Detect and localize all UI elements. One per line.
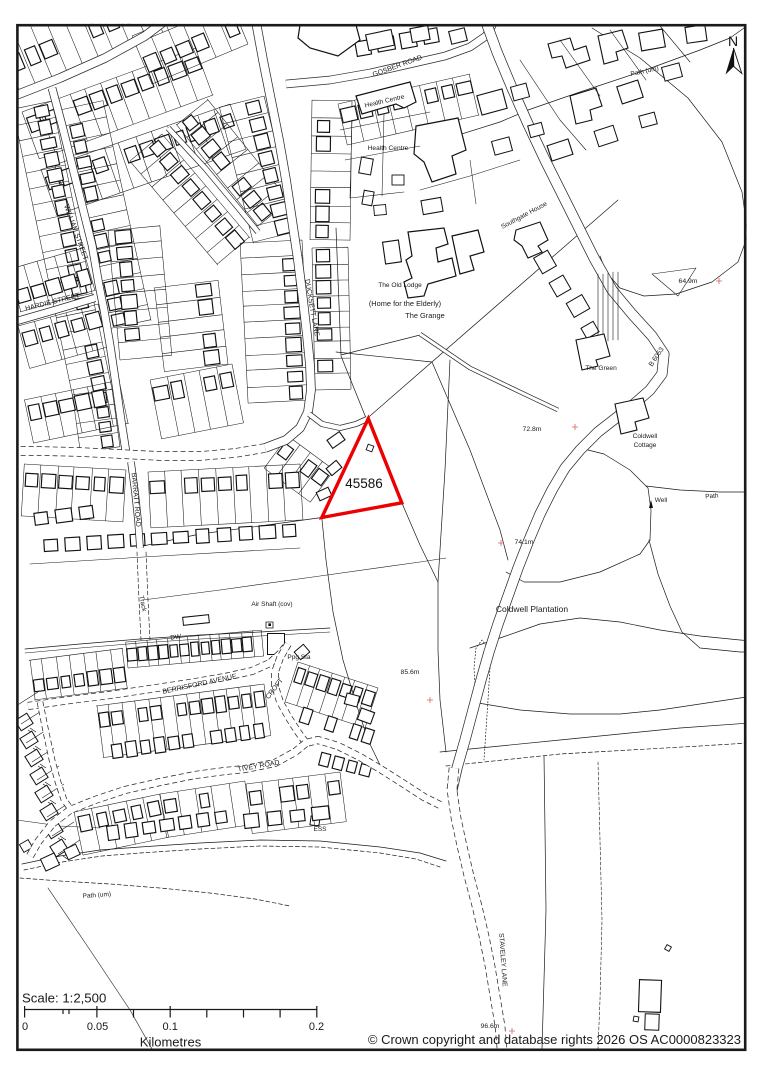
svg-text:72.8m: 72.8m	[523, 426, 542, 433]
svg-text:Health Centre: Health Centre	[368, 145, 409, 152]
svg-text:74.1m: 74.1m	[515, 539, 534, 546]
svg-text:Ppg Sta: Ppg Sta	[287, 654, 311, 661]
svg-text:Coldwell: Coldwell	[633, 433, 658, 440]
svg-text:The Grange: The Grange	[405, 311, 444, 320]
svg-text:© Crown copyright and database: © Crown copyright and database rights 20…	[368, 1032, 741, 1047]
svg-text:64.9m: 64.9m	[679, 278, 698, 285]
svg-text:Air Shaft (cov): Air Shaft (cov)	[251, 601, 292, 608]
svg-text:Kilometres: Kilometres	[140, 1035, 202, 1050]
svg-text:ESS: ESS	[313, 826, 327, 833]
svg-text:Coldwell Plantation: Coldwell Plantation	[496, 604, 569, 614]
svg-text:N: N	[728, 33, 738, 49]
svg-text:Path: Path	[705, 493, 719, 501]
svg-text:The Green: The Green	[585, 365, 617, 372]
svg-text:85.6m: 85.6m	[401, 669, 420, 676]
svg-text:0.2: 0.2	[309, 1021, 324, 1033]
svg-text:Cottage: Cottage	[634, 442, 657, 449]
svg-text:45586: 45586	[345, 476, 383, 491]
svg-text:Well: Well	[655, 497, 668, 504]
svg-text:The Old Lodge: The Old Lodge	[378, 282, 422, 289]
svg-text:0.1: 0.1	[163, 1021, 178, 1033]
svg-text:0.05: 0.05	[87, 1021, 108, 1033]
svg-text:0: 0	[22, 1021, 28, 1033]
svg-text:Scale: 1:2,500: Scale: 1:2,500	[22, 991, 106, 1006]
svg-text:96.6m: 96.6m	[481, 1023, 500, 1030]
svg-text:(Home for the Elderly): (Home for the Elderly)	[369, 299, 441, 308]
